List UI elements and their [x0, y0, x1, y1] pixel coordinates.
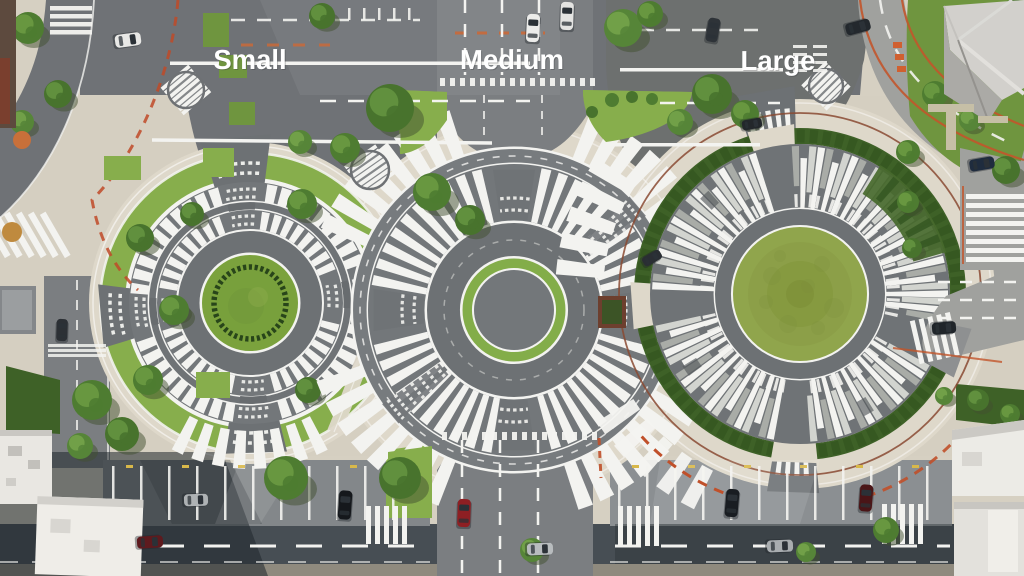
svg-text:Large: Large: [741, 45, 816, 76]
svg-text:Medium: Medium: [460, 44, 564, 75]
svg-text:Small: Small: [213, 44, 286, 75]
